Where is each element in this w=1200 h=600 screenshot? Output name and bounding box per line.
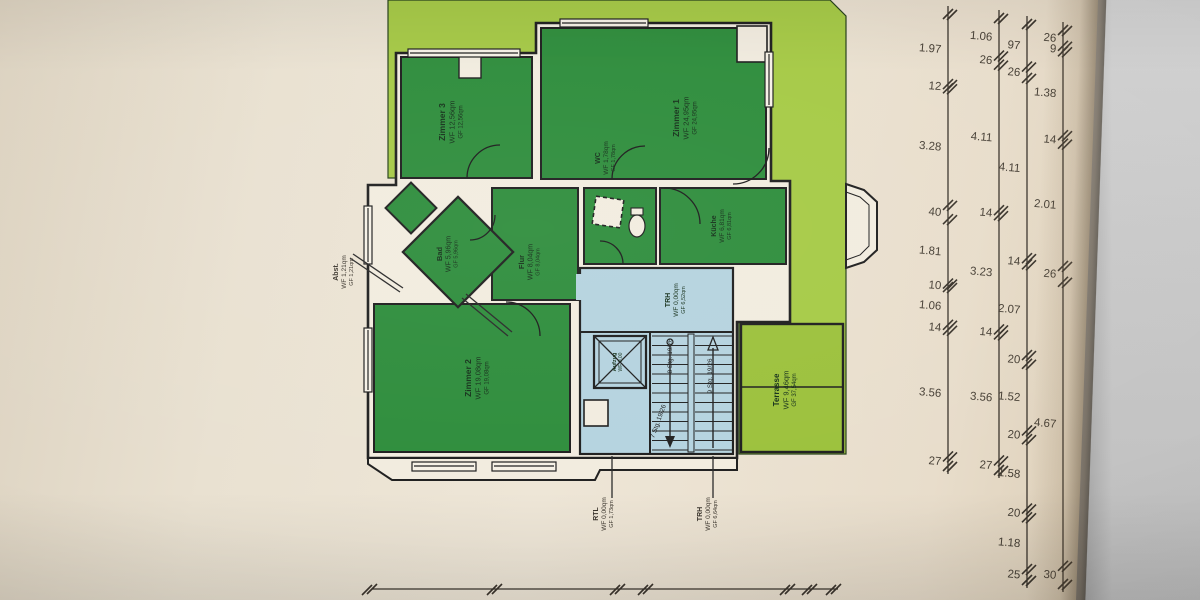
dim-value: 20 xyxy=(1007,507,1021,520)
svg-text:RTL: RTL xyxy=(593,506,600,520)
svg-text:GF 37,54qm: GF 37,54qm xyxy=(792,373,798,406)
dim-value: 1.06 xyxy=(969,30,992,44)
dim-value: 4.11 xyxy=(998,161,1020,175)
dim-value: 10 xyxy=(928,279,942,292)
svg-text:GF 1,21qm: GF 1,21qm xyxy=(349,258,355,286)
dimension-chain-4: 2691.38142.01264.6730 xyxy=(1033,22,1072,592)
svg-text:Terrasse: Terrasse xyxy=(772,373,781,406)
dim-value: 4.67 xyxy=(1033,417,1056,431)
label-trh-bottom: TRH WF 0,00qm GF 6,64qm xyxy=(697,497,719,531)
svg-text:WF 8,04qm: WF 8,04qm xyxy=(528,244,535,280)
dim-value: 1.81 xyxy=(918,244,941,258)
dim-value: 3.56 xyxy=(918,386,941,400)
svg-text:WF 1,21qm: WF 1,21qm xyxy=(341,255,348,289)
svg-text:GF 19,08qm: GF 19,08qm xyxy=(485,361,491,394)
dim-value: 20 xyxy=(1007,353,1021,366)
dim-value: 3.56 xyxy=(969,391,992,405)
svg-text:GF 6,64qm: GF 6,64qm xyxy=(713,500,719,528)
dim-value: 4.11 xyxy=(970,131,992,145)
label-rtl-bottom: RTL WF 0,00qm GF 1,73qm xyxy=(593,497,615,531)
dim-value: 26 xyxy=(979,54,993,67)
bottom-dimension-chain xyxy=(362,584,841,595)
svg-text:Flur: Flur xyxy=(517,255,526,269)
dim-value: 1.97 xyxy=(918,42,941,56)
svg-text:WF 1,78qm: WF 1,78qm xyxy=(603,141,610,175)
dim-value: 27 xyxy=(979,459,993,472)
stair-stringer xyxy=(688,334,694,452)
svg-text:WF 6,81qm: WF 6,81qm xyxy=(719,209,726,243)
dim-value: 14 xyxy=(928,321,942,334)
dim-value: 26 xyxy=(1007,66,1021,79)
dim-value: 26 xyxy=(1043,268,1057,281)
svg-text:WC: WC xyxy=(595,152,602,164)
svg-text:Abst.: Abst. xyxy=(333,263,340,281)
dim-value: 2.01 xyxy=(1033,198,1056,212)
svg-text:GF 12,56qm: GF 12,56qm xyxy=(459,105,465,138)
dim-value: 1.38 xyxy=(1033,86,1056,100)
floorplan-photo: Zimmer 3 WF 12,56qm GF 12,56qm Zimmer 1 … xyxy=(0,0,1200,600)
dim-value: 30 xyxy=(1043,569,1057,582)
dim-value: 97 xyxy=(1007,39,1021,52)
stair-label-8stg: 8 Stg. 19/26 xyxy=(667,338,674,373)
svg-text:GF 24,95qm: GF 24,95qm xyxy=(693,101,699,134)
svg-text:WF 0,00: WF 0,00 xyxy=(618,352,624,371)
dim-value: 27 xyxy=(928,455,942,468)
svg-text:TRH: TRH xyxy=(697,507,704,521)
svg-text:WF 0,00qm: WF 0,00qm xyxy=(601,497,608,531)
svg-text:Zimmer 2: Zimmer 2 xyxy=(463,359,473,397)
dim-value: 25 xyxy=(1007,568,1021,581)
dim-value: 14 xyxy=(979,207,993,220)
floorplan-drawing: Zimmer 3 WF 12,56qm GF 12,56qm Zimmer 1 … xyxy=(0,0,1200,600)
svg-text:WF 9,46qm: WF 9,46qm xyxy=(782,371,791,410)
svg-text:WF 0,00qm: WF 0,00qm xyxy=(673,283,680,317)
svg-text:GF 6,52qm: GF 6,52qm xyxy=(681,286,687,314)
door-gap xyxy=(576,274,584,300)
dimension-chain-3: 97264.11142.07201.52201.58201.1825 xyxy=(997,16,1036,588)
svg-text:WF 5,96qm: WF 5,96qm xyxy=(446,236,453,272)
dim-value: 3.23 xyxy=(969,265,992,279)
dim-value: 3.28 xyxy=(918,140,941,154)
svg-text:GF 5,96qm: GF 5,96qm xyxy=(454,240,460,268)
dim-value: 9 xyxy=(1049,43,1056,56)
svg-text:WF 19,08qm: WF 19,08qm xyxy=(474,357,483,400)
dim-value: 14 xyxy=(1043,133,1057,146)
svg-text:Küche: Küche xyxy=(711,215,718,237)
svg-text:Bad: Bad xyxy=(435,246,444,261)
svg-text:GF 1,73qm: GF 1,73qm xyxy=(609,500,615,528)
room-label-aufzug: Aufzug WF 0,00 xyxy=(612,352,624,371)
rtl-shaft xyxy=(584,400,608,426)
svg-text:GF 8,04qm: GF 8,04qm xyxy=(536,248,542,276)
dim-value: 1.18 xyxy=(997,536,1020,550)
svg-text:Zimmer 1: Zimmer 1 xyxy=(671,99,681,137)
dim-value: 1.52 xyxy=(997,390,1020,404)
dim-value: 12 xyxy=(928,80,942,93)
closet-notch xyxy=(459,56,481,78)
svg-text:GF 1,78qm: GF 1,78qm xyxy=(611,144,617,172)
dim-value: 2.07 xyxy=(997,303,1020,317)
svg-text:TRH: TRH xyxy=(665,293,672,307)
dimension-chain-1: 1.97123.28401.81101.06143.5627 xyxy=(918,6,957,474)
label-abstellraum: Abst. WF 1,21qm GF 1,21qm xyxy=(333,255,355,289)
room-zimmer1 xyxy=(541,28,766,179)
svg-text:WF 0,00qm: WF 0,00qm xyxy=(705,497,712,531)
room-label-terrasse: Terrasse WF 9,46qm GF 37,54qm xyxy=(772,371,798,410)
svg-text:GF 6,81qm: GF 6,81qm xyxy=(727,212,733,240)
svg-text:Zimmer 3: Zimmer 3 xyxy=(437,103,447,141)
zimmer1-wall-jog xyxy=(737,26,767,62)
room-label-zimmer1: Zimmer 1 WF 24,95qm GF 24,95qm xyxy=(671,97,699,140)
stair-label-9stg: 9 Stg. 19/26 xyxy=(707,358,714,393)
dim-value: 40 xyxy=(928,206,942,219)
dim-value: 14 xyxy=(979,326,993,339)
dimension-chain-2: 1.06264.11143.23143.5627 xyxy=(969,10,1008,478)
dim-value: 1.06 xyxy=(918,299,941,313)
dim-value: 14 xyxy=(1007,255,1021,268)
room-label-zimmer2: Zimmer 2 WF 19,08qm GF 19,08qm xyxy=(463,357,491,400)
svg-text:WF 12,56qm: WF 12,56qm xyxy=(448,101,457,144)
svg-text:WF 24,95qm: WF 24,95qm xyxy=(682,97,691,140)
right-bay xyxy=(846,184,877,268)
room-label-zimmer3: Zimmer 3 WF 12,56qm GF 12,56qm xyxy=(437,101,465,144)
dim-value: 1.58 xyxy=(997,467,1020,481)
dim-value: 20 xyxy=(1007,429,1021,442)
